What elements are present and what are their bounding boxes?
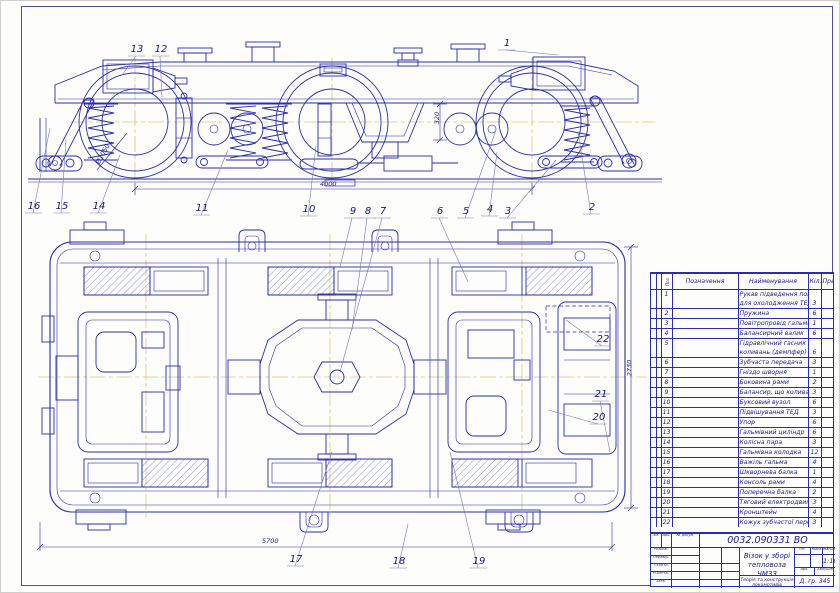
label-mass: Маса xyxy=(810,547,822,554)
spec-c-name: Рукав підведення повітря xyxy=(738,290,808,300)
spec-c-note xyxy=(821,378,833,388)
spec-c-note xyxy=(821,498,833,508)
spec-c-des xyxy=(672,518,738,528)
callout-17: 17 xyxy=(289,554,303,565)
side-view xyxy=(28,42,662,186)
label-lit: Літ. xyxy=(794,547,810,554)
spec-c-pos: 22 xyxy=(661,518,672,528)
group-number: Д. гр. 345 xyxy=(794,575,835,588)
spec-c-des xyxy=(672,299,738,309)
label-scale: Масштаб xyxy=(822,547,835,554)
callout-20: 20 xyxy=(592,412,606,423)
spec-row: 4Балансирний валик6 xyxy=(651,329,833,339)
spec-row: 15Гальмівна колодка12 xyxy=(651,448,833,458)
spec-row: 11Підвішування ТЕД3 xyxy=(651,408,833,418)
spec-c-qty: 6 xyxy=(808,428,821,438)
spec-c-des xyxy=(672,488,738,498)
spec-c-qty: 1 xyxy=(808,468,821,478)
spec-c-des xyxy=(672,428,738,438)
callout-10: 10 xyxy=(302,204,316,215)
col-pos: Поз. xyxy=(661,274,672,290)
spec-c-name: Балансирний валик xyxy=(738,329,808,339)
callout-21: 21 xyxy=(594,389,608,400)
spec-c-qty: 4 xyxy=(808,458,821,468)
callout-6: 6 xyxy=(433,206,447,217)
label-change: Зм. xyxy=(651,534,661,547)
spec-row: 8Боковина рами2 xyxy=(651,378,833,388)
callout-7: 7 xyxy=(376,206,390,217)
drawing-title: Візок у зборі тепловоза ЧМЗЗ xyxy=(739,547,794,575)
spec-c-des xyxy=(672,498,738,508)
spec-c-note xyxy=(821,508,833,518)
spec-c-qty: 3 xyxy=(808,388,821,398)
spec-row: 14Колісна пара3 xyxy=(651,438,833,448)
dimension-320: 320 xyxy=(433,112,441,124)
spec-c-pos: 12 xyxy=(661,418,672,428)
spec-c-name: Гніздо шворня xyxy=(738,368,808,378)
spec-row: 3Повітропровід гальма1 xyxy=(651,319,833,329)
label-doc-col: № докум. xyxy=(671,534,699,547)
callout-4: 4 xyxy=(483,204,497,215)
label-sheets: Аркушів xyxy=(814,567,835,575)
spec-row: 5Гідравлічний гасник xyxy=(651,339,833,349)
spec-c-name: коливань (демпфер) xyxy=(738,348,808,358)
spec-c-note xyxy=(821,518,833,528)
spec-c-pos: 18 xyxy=(661,478,672,488)
spec-c-qty xyxy=(808,339,821,349)
label-checked: Перевір. xyxy=(651,555,671,563)
spec-row: 12Упор6 xyxy=(651,418,833,428)
spec-row: 9Балансир, що коливається3 xyxy=(651,388,833,398)
course-name: Теорія та конструкція локомотивів xyxy=(739,575,794,588)
spec-c-qty: 3 xyxy=(808,518,821,528)
spec-c-pos xyxy=(661,299,672,309)
spec-c-qty: 12 xyxy=(808,448,821,458)
spec-c-des xyxy=(672,478,738,488)
doc-number: 0032.090331 ВО xyxy=(699,534,835,547)
spec-c-pos: 1 xyxy=(661,290,672,300)
spec-c-name: Гальмівна колодка xyxy=(738,448,808,458)
col-name: Найменування xyxy=(738,274,808,290)
spec-c-des xyxy=(672,348,738,358)
spec-row: 22Кожух зубчастої передачі3 xyxy=(651,518,833,528)
spec-c-des xyxy=(672,468,738,478)
spec-c-des xyxy=(672,388,738,398)
date-column xyxy=(721,547,739,588)
spec-row: 7Гніздо шворня1 xyxy=(651,368,833,378)
spec-c-qty: 6 xyxy=(808,348,821,358)
callout-22: 22 xyxy=(596,334,610,345)
spec-c-name: Підвішування ТЕД xyxy=(738,408,808,418)
spec-c-qty: 4 xyxy=(808,478,821,488)
label-sheet: Арк. xyxy=(794,567,814,575)
label-tcontrol: Т.контр. xyxy=(651,563,671,571)
spec-row: 20Тяговий електродвигун3 xyxy=(651,498,833,508)
spec-c-note xyxy=(821,458,833,468)
spec-c-des xyxy=(672,448,738,458)
callout-8: 8 xyxy=(361,206,375,217)
specification-table: Формат Зона Поз. Позначення Найменування… xyxy=(650,272,834,533)
spec-c-pos: 14 xyxy=(661,438,672,448)
title-block: Зм. Арк. № докум. 0032.090331 ВО Розроб.… xyxy=(650,533,834,587)
spec-c-pos: 9 xyxy=(661,388,672,398)
callout-12: 12 xyxy=(154,44,168,55)
spec-c-des xyxy=(672,290,738,300)
spec-c-pos: 7 xyxy=(661,368,672,378)
spec-c-pos xyxy=(661,348,672,358)
spec-c-name: Важіль гальма xyxy=(738,458,808,468)
spec-row: 1Рукав підведення повітря xyxy=(651,290,833,300)
spec-c-name: Упор xyxy=(738,418,808,428)
dimension-2730: 2730 xyxy=(625,360,633,377)
spec-c-qty: 3 xyxy=(808,358,821,368)
spec-c-name: Колісна пара xyxy=(738,438,808,448)
spec-c-pos: 20 xyxy=(661,498,672,508)
spec-c-qty: 6 xyxy=(808,418,821,428)
spec-c-note xyxy=(821,428,833,438)
spec-c-des xyxy=(672,508,738,518)
spec-c-note xyxy=(821,348,833,358)
dimension-5700: 5700 xyxy=(262,537,279,545)
dimension-4000: 4000 xyxy=(320,180,337,188)
spec-row-cont: для охолодження ТЕД3 xyxy=(651,299,833,309)
col-note: Прим. xyxy=(821,274,833,290)
spec-c-note xyxy=(821,418,833,428)
spec-row: 21Кронштейн4 xyxy=(651,508,833,518)
spec-c-name: Кронштейн xyxy=(738,508,808,518)
callout-19: 19 xyxy=(472,556,486,567)
spec-c-name: для охолодження ТЕД xyxy=(738,299,808,309)
callout-5: 5 xyxy=(459,206,473,217)
callout-16: 16 xyxy=(27,201,41,212)
spec-c-qty: 2 xyxy=(808,378,821,388)
spec-c-pos: 5 xyxy=(661,339,672,349)
callout-3: 3 xyxy=(501,206,515,217)
spec-row-cont: коливань (демпфер)6 xyxy=(651,348,833,358)
spec-c-qty xyxy=(808,290,821,300)
spec-c-pos: 3 xyxy=(661,319,672,329)
spec-c-pos: 15 xyxy=(661,448,672,458)
spec-c-name: Гальмівний циліндр xyxy=(738,428,808,438)
spec-c-pos: 17 xyxy=(661,468,672,478)
spec-c-name: Шкворнева балка xyxy=(738,468,808,478)
spec-c-qty: 2 xyxy=(808,488,821,498)
spec-c-note xyxy=(821,309,833,319)
spec-c-name: Пружина xyxy=(738,309,808,319)
spec-c-name: Зубчаста передача xyxy=(738,358,808,368)
spec-c-pos: 2 xyxy=(661,309,672,319)
spec-c-des xyxy=(672,358,738,368)
spec-c-qty: 6 xyxy=(808,309,821,319)
scale-value: 1:10 xyxy=(822,554,835,567)
spec-c-des xyxy=(672,378,738,388)
spec-row: 19Поперечна балка2 xyxy=(651,488,833,498)
spec-row: 2Пружина6 xyxy=(651,309,833,319)
spec-c-pos: 16 xyxy=(661,458,672,468)
spec-c-des xyxy=(672,398,738,408)
names-column xyxy=(671,547,699,588)
callout-13: 13 xyxy=(130,44,144,55)
label-developed: Розроб. xyxy=(651,547,671,555)
spec-c-name: Тяговий електродвигун xyxy=(738,498,808,508)
callout-14: 14 xyxy=(92,201,106,212)
spec-c-pos: 13 xyxy=(661,428,672,438)
spec-c-pos: 11 xyxy=(661,408,672,418)
spec-c-name: Кожух зубчастої передачі xyxy=(738,518,808,528)
spec-c-qty: 3 xyxy=(808,299,821,309)
lit-boxes xyxy=(794,554,810,567)
spec-c-qty: 1 xyxy=(808,319,821,329)
spec-row: 10Буксовий вузол6 xyxy=(651,398,833,408)
spec-row: 16Важіль гальма4 xyxy=(651,458,833,468)
spec-c-des xyxy=(672,438,738,448)
spec-c-name: Буксовий вузол xyxy=(738,398,808,408)
col-qty: Кіл. xyxy=(808,274,821,290)
spec-c-name: Гідравлічний гасник xyxy=(738,339,808,349)
spec-c-note xyxy=(821,329,833,339)
spec-c-qty: 3 xyxy=(808,408,821,418)
spec-row: 18Консоль рами4 xyxy=(651,478,833,488)
spec-c-des xyxy=(672,368,738,378)
callout-18: 18 xyxy=(392,556,406,567)
spec-c-des xyxy=(672,329,738,339)
spec-c-note xyxy=(821,478,833,488)
spec-c-des xyxy=(672,319,738,329)
spec-c-note xyxy=(821,290,833,300)
spec-c-note xyxy=(821,408,833,418)
callout-9: 9 xyxy=(346,206,360,217)
spec-c-note xyxy=(821,339,833,349)
spec-c-des xyxy=(672,418,738,428)
spec-c-qty: 6 xyxy=(808,398,821,408)
spec-c-qty: 3 xyxy=(808,498,821,508)
spec-c-name: Поперечна балка xyxy=(738,488,808,498)
spec-c-name: Повітропровід гальма xyxy=(738,319,808,329)
spec-c-pos: 19 xyxy=(661,488,672,498)
spec-c-note xyxy=(821,358,833,368)
spec-row: 17Шкворнева балка1 xyxy=(651,468,833,478)
callout-1: 1 xyxy=(500,38,514,49)
spec-c-note xyxy=(821,438,833,448)
spec-c-name: Боковина рами xyxy=(738,378,808,388)
spec-row: 6Зубчаста передача3 xyxy=(651,358,833,368)
spec-c-note xyxy=(821,319,833,329)
spec-c-pos: 6 xyxy=(661,358,672,368)
mass-value xyxy=(810,554,822,567)
spec-c-des xyxy=(672,309,738,319)
callout-15: 15 xyxy=(55,201,69,212)
spec-c-qty: 1 xyxy=(808,368,821,378)
spec-c-name: Балансир, що коливається xyxy=(738,388,808,398)
spec-c-qty: 4 xyxy=(808,508,821,518)
spec-c-pos: 4 xyxy=(661,329,672,339)
spec-c-note xyxy=(821,398,833,408)
spec-row: 13Гальмівний циліндр6 xyxy=(651,428,833,438)
spec-c-name: Консоль рами xyxy=(738,478,808,488)
spec-c-note xyxy=(821,468,833,478)
callout-2: 2 xyxy=(585,202,599,213)
label-sheet-col: Арк. xyxy=(661,534,671,547)
spec-c-note xyxy=(821,368,833,378)
spec-c-pos: 21 xyxy=(661,508,672,518)
label-ncontrol: Н.контр. xyxy=(651,571,671,579)
col-designation: Позначення xyxy=(672,274,738,290)
drawing-sheet: Формат Зона Поз. Позначення Найменування… xyxy=(0,0,840,593)
spec-c-des xyxy=(672,339,738,349)
spec-c-pos: 8 xyxy=(661,378,672,388)
spec-c-note xyxy=(821,388,833,398)
spec-c-qty: 3 xyxy=(808,438,821,448)
label-approved: Затв. xyxy=(651,579,671,588)
signature-column xyxy=(699,547,721,588)
spec-c-pos: 10 xyxy=(661,398,672,408)
spec-c-des xyxy=(672,458,738,468)
callout-11: 11 xyxy=(195,203,209,214)
spec-c-note xyxy=(821,448,833,458)
spec-c-des xyxy=(672,408,738,418)
spec-c-note xyxy=(821,299,833,309)
spec-c-qty: 6 xyxy=(808,329,821,339)
spec-c-note xyxy=(821,488,833,498)
